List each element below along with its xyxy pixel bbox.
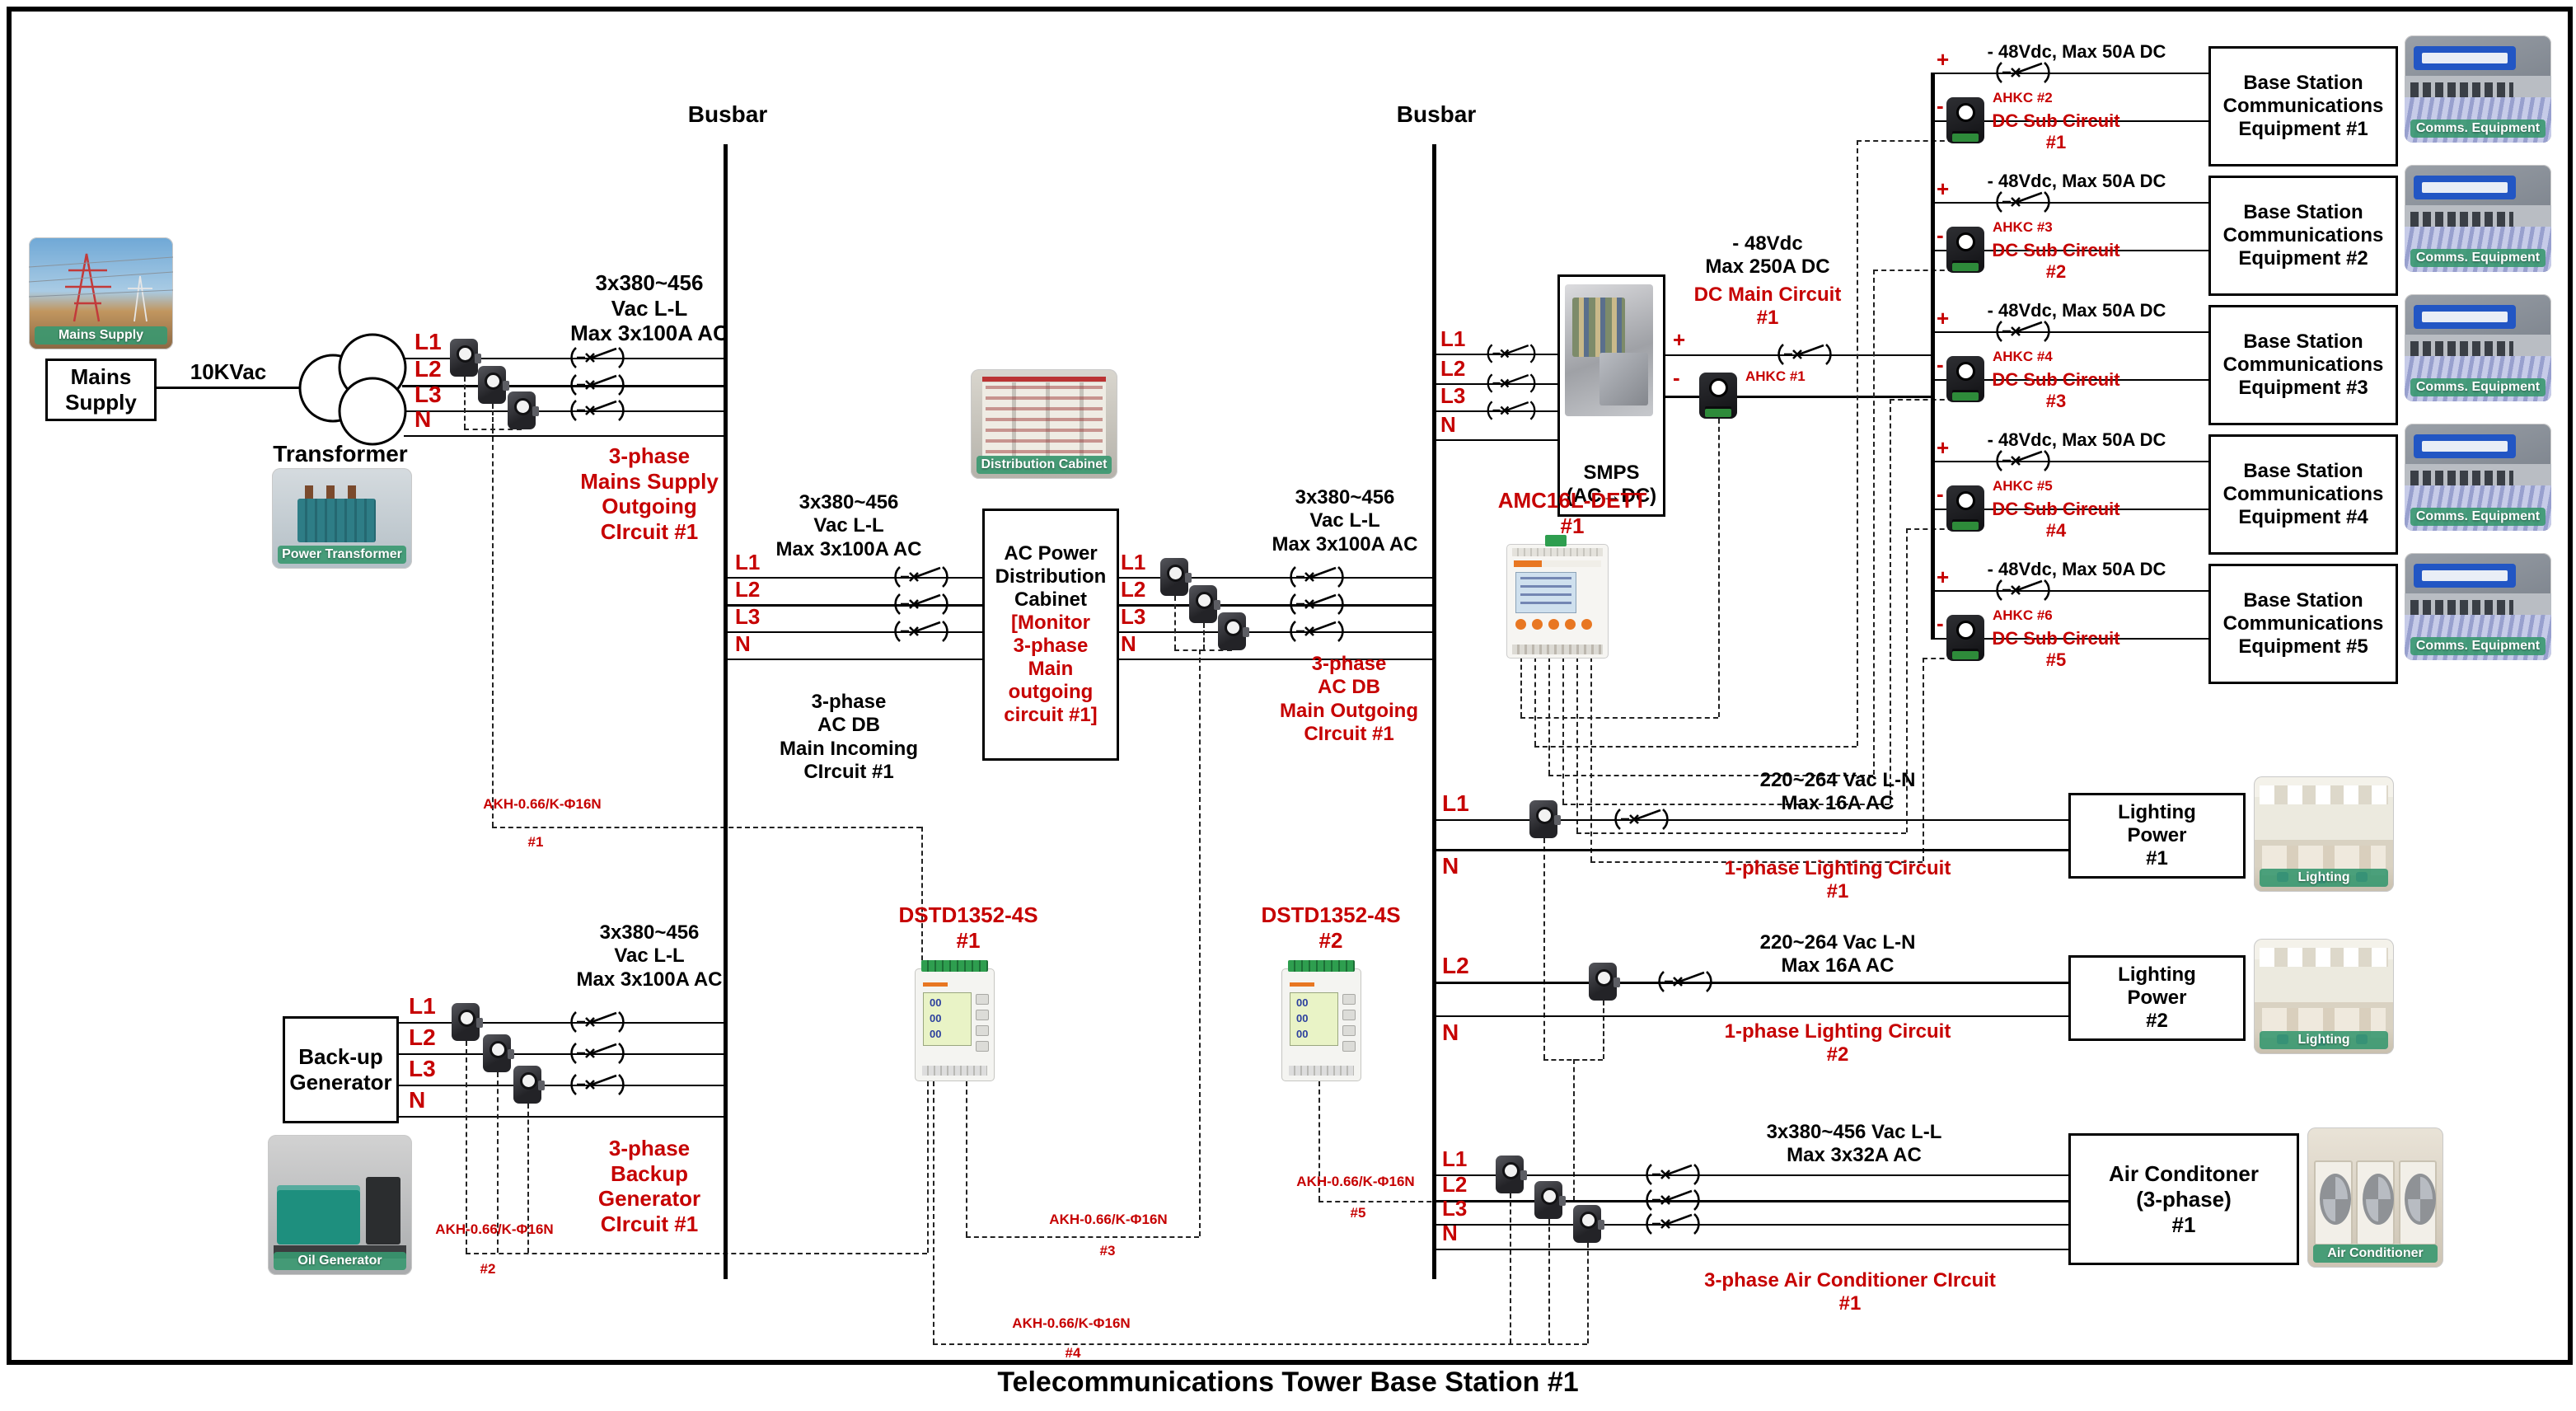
acdb-ct-number-label: #3	[1100, 1243, 1116, 1259]
light1-breaker	[1609, 808, 1674, 831]
wire5-type-label: AKH-0.66/K-Φ16N	[1296, 1174, 1414, 1190]
ac-rating: 3x380~456 Vac L-L Max 3x32A AC	[1767, 1121, 1942, 1168]
power-tower-icon	[29, 239, 173, 330]
smps-breaker-l3	[1482, 399, 1541, 422]
dcsub2-breaker	[1990, 190, 2056, 213]
gen-l2-label: L2	[409, 1025, 436, 1051]
dcsub3-plus: +	[1937, 307, 1949, 330]
acdb-out-n-label: N	[1121, 632, 1136, 656]
dcsub4-circuit-label: DC Sub Circuit #4	[1992, 499, 2119, 541]
mains-ct-wire-drop1	[464, 377, 466, 429]
dcsub4-photo-caption: Comms. Equipment	[2410, 508, 2546, 526]
dcsub4-rating: - 48Vdc, Max 50A DC	[1988, 429, 2166, 451]
amc-wire3-riser	[1873, 270, 1875, 775]
mains-ct-wire-horiz	[492, 827, 921, 828]
mains-ct-type-label: AKH-0.66/K-Φ16N	[483, 796, 601, 813]
busbar-left-label: Busbar	[688, 101, 767, 128]
dcsub5-breaker	[1990, 579, 2056, 602]
wire4-horiz	[933, 1343, 1587, 1345]
acdb-out-ct-l1	[1160, 558, 1188, 596]
amc-wire4-riser	[1890, 399, 1891, 804]
mains-breaker-l2	[564, 373, 630, 396]
ac-unit-art	[2399, 1160, 2438, 1245]
mains-photo-caption: Mains Supply	[35, 326, 167, 345]
smps-n-label: N	[1440, 413, 1456, 437]
amc-wire2-horiz	[1534, 746, 1857, 748]
dcsub2-comms-photo: Comms. Equipment	[2405, 165, 2551, 272]
ac-breaker-l1	[1640, 1163, 1706, 1186]
amc-wire5-drop	[1576, 657, 1578, 832]
dcsub5-sensor-label: AHKC #6	[1993, 608, 2053, 624]
ac-photo: Air Conditioner	[2307, 1127, 2443, 1268]
gen-ct-number-label: #2	[480, 1261, 496, 1277]
dcsub2-hall-sensor	[1946, 227, 1984, 273]
ceiling-lights-art	[2260, 948, 2388, 966]
router-art	[2414, 176, 2517, 199]
dcsub3-plus-line	[1932, 331, 2208, 333]
acdb-out-breaker-l1	[1284, 565, 1350, 588]
amc-wire2-riser	[1857, 140, 1858, 746]
dstd2-slots	[1289, 1066, 1354, 1076]
light2-rating: 220~264 Vac L-N Max 16A AC	[1760, 931, 1916, 978]
dcsub4-plus: +	[1937, 436, 1949, 460]
dstd1-buttons	[976, 994, 989, 1052]
dcsub3-photo-caption: Comms. Equipment	[2410, 378, 2546, 396]
amc-meter-label: AMC16L-DETT #1	[1498, 488, 1647, 538]
dcsub5-comms-photo: Comms. Equipment	[2405, 553, 2551, 660]
dcsub1-breaker	[1990, 61, 2056, 84]
gen-breaker-l1	[564, 1010, 630, 1034]
generator-radiator-art	[366, 1177, 400, 1245]
acdb-in-breaker-l1	[888, 565, 954, 588]
acdb-ct-wire-drop2	[1203, 623, 1205, 649]
generator-photo-caption: Oil Generator	[274, 1252, 406, 1270]
amc-wire1-horiz	[1520, 717, 1718, 719]
gen-ct-l2	[483, 1034, 511, 1072]
amc-wire6-riser	[1923, 658, 1924, 861]
dcsub5-plus: +	[1937, 565, 1949, 589]
dcsub1-circuit-label: DC Sub Circuit #1	[1992, 110, 2119, 153]
dcsub1-plus: +	[1937, 48, 1949, 72]
dcsub4-comms-photo: Comms. Equipment	[2405, 424, 2551, 531]
dcsub1-minus: -	[1937, 94, 1944, 118]
amc-wire1-riser	[1718, 419, 1720, 717]
acdb-out-line-l2	[1114, 604, 1432, 607]
mains-l2-label: L2	[415, 357, 442, 382]
amc-wire3-drop	[1548, 657, 1550, 775]
dcsub1-rating: - 48Vdc, Max 50A DC	[1988, 41, 2166, 63]
dc-main-rating-label: - 48Vdc Max 250A DC	[1705, 232, 1829, 279]
router-art	[2414, 305, 2517, 329]
dcsub1-equipment-box: Base Station Communications Equipment #1	[2208, 46, 2398, 166]
wire4-number-label: #4	[1066, 1345, 1081, 1362]
ac-breaker-l3	[1640, 1212, 1706, 1235]
mains-supply-box: Mains Supply	[45, 359, 157, 421]
light2-l-label: L2	[1442, 954, 1469, 979]
amc-wire6-drop	[1590, 657, 1592, 861]
ac-n-label: N	[1442, 1221, 1458, 1245]
amc-wire5-horiz	[1576, 832, 1906, 834]
wire5-vert	[1573, 1059, 1575, 1201]
ac-l2-label: L2	[1442, 1173, 1467, 1197]
dc-main-plus-label: +	[1673, 328, 1685, 352]
acdb-out-l3-label: L3	[1121, 605, 1145, 629]
smps-breaker-l1	[1482, 342, 1541, 365]
busbar-right-label: Busbar	[1397, 101, 1476, 128]
distribution-cabinet-photo: Distribution Cabinet	[971, 369, 1117, 479]
dcsub4-sensor-label: AHKC #5	[1993, 479, 2053, 495]
ac-line-n	[1436, 1249, 2068, 1250]
mains-breaker-l1	[564, 346, 630, 369]
ceiling-lights-art	[2260, 785, 2388, 804]
ac-l3-label: L3	[1442, 1197, 1467, 1221]
dstd1-lcd: 00 00 00	[923, 992, 972, 1046]
dcsub3-circuit-label: DC Sub Circuit #3	[1992, 369, 2119, 412]
dcsub2-plus-line	[1932, 202, 2208, 204]
mains-ct-wire-drop2	[492, 404, 494, 429]
smps-line-n	[1436, 439, 1557, 441]
dstd2-label: DSTD1352-4S #2	[1261, 902, 1400, 953]
dcsub3-hall-sensor	[1946, 356, 1984, 402]
dcsub1-sensor-label: AHKC #2	[1993, 91, 2053, 106]
amc-terminal-row-bottom	[1512, 645, 1603, 654]
gen-ct-wire-horiz	[466, 1253, 927, 1254]
acdb-ct-wire-vert	[1199, 649, 1201, 1236]
acdb-in-n-label: N	[735, 632, 751, 656]
dcsub1-comms-photo: Comms. Equipment	[2405, 35, 2551, 143]
router-art	[2414, 434, 2517, 458]
oil-generator-photo: Oil Generator	[268, 1135, 412, 1275]
gen-breaker-l3	[564, 1073, 630, 1096]
wire4-type-label: AKH-0.66/K-Φ16N	[1012, 1315, 1130, 1332]
smps-l3-label: L3	[1440, 384, 1465, 408]
ac-ct-l1	[1496, 1156, 1524, 1193]
smps-breaker-l2	[1482, 372, 1541, 395]
light2-ct	[1589, 963, 1617, 1001]
light1-photo: Lighting	[2254, 776, 2394, 892]
ac-ct-drop3	[1587, 1243, 1589, 1343]
dcsub5-rating: - 48Vdc, Max 50A DC	[1988, 559, 2166, 580]
dcsub3-rating: - 48Vdc, Max 50A DC	[1988, 300, 2166, 321]
dcsub1-photo-caption: Comms. Equipment	[2410, 120, 2546, 138]
acdb-ct-wire-horiz	[966, 1236, 1199, 1238]
dcsub2-circuit-label: DC Sub Circuit #2	[1992, 240, 2119, 283]
light1-circuit-label: 1-phase Lighting Circuit #1	[1725, 857, 1951, 904]
ac-photo-caption: Air Conditioner	[2313, 1245, 2438, 1263]
dc-main-sensor-label: AHKC #1	[1745, 369, 1806, 385]
mains-ct-number-label: #1	[528, 834, 544, 851]
acdb-in-l2-label: L2	[735, 578, 760, 602]
ac-db-box: AC Power Distribution Cabinet [Monitor 3…	[982, 509, 1119, 761]
dcsub5-circuit-label: DC Sub Circuit #5	[1992, 628, 2119, 671]
mains-n-label: N	[415, 407, 431, 433]
transformer-label: Transformer	[273, 440, 407, 467]
acdb-in-breaker-l3	[888, 620, 954, 643]
mains-ct-l2	[478, 366, 506, 404]
mains-l3-label: L3	[415, 382, 442, 408]
smps-l1-label: L1	[1440, 327, 1465, 351]
acdb-out-l2-label: L2	[1121, 578, 1145, 602]
gen-line-l3	[396, 1085, 725, 1086]
transformer-photo-caption: Power Transformer	[278, 546, 406, 564]
acdb-ct-wire-to-meter	[966, 1081, 967, 1236]
router-art	[2414, 46, 2517, 70]
wire4-riser-meter	[933, 1081, 934, 1343]
acdb-in-l1-label: L1	[735, 551, 760, 574]
light2-photo-caption: Lighting	[2260, 1031, 2388, 1049]
mains-breaker-l3	[564, 399, 630, 422]
ac-ct-drop2	[1548, 1219, 1550, 1343]
ac-l1-label: L1	[1442, 1147, 1467, 1171]
acdb-out-ct-l3	[1218, 612, 1246, 650]
light2-box: Lighting Power #2	[2068, 955, 2246, 1041]
gen-ct-wire-to-meter	[927, 1081, 929, 1253]
mains-line-n	[404, 435, 725, 437]
ac-unit-art	[2314, 1160, 2353, 1245]
gen-ct-l1	[452, 1003, 480, 1041]
diagram-title: Telecommunications Tower Base Station #1	[0, 1366, 2576, 1399]
amc-wire4-drop	[1562, 657, 1564, 804]
wire5-join	[1543, 1059, 1603, 1061]
dstd2-lcd: 00 00 00	[1290, 992, 1338, 1046]
cabinet-photo-caption: Distribution Cabinet	[977, 456, 1112, 474]
acdb-ct-wire-drop1	[1174, 596, 1176, 649]
dc-main-hall-sensor	[1699, 373, 1737, 419]
ac-circuit-label: 3-phase Air Conditioner CIrcuit #1	[1704, 1269, 1996, 1316]
light2-n-label: N	[1442, 1020, 1459, 1046]
ac-ct-l3	[1573, 1205, 1601, 1243]
dcsub5-minus: -	[1937, 612, 1944, 635]
dc-bus	[1931, 73, 1935, 640]
cabinet-top-art	[982, 377, 1106, 382]
dstd2-terminals	[1288, 960, 1355, 972]
light2-line-n	[1436, 1015, 2068, 1017]
acdb-out-breaker-l3	[1284, 620, 1350, 643]
transformer-body-art	[297, 499, 376, 543]
mains-outgoing-label: 3-phase Mains Supply Outgoing CIrcuit #1	[580, 443, 719, 545]
dc-main-minus-label: -	[1673, 366, 1680, 390]
acdb-out-breaker-l2	[1284, 593, 1350, 616]
light1-photo-caption: Lighting	[2260, 869, 2388, 887]
cabinet-grid-art	[982, 382, 1106, 457]
gen-line-n	[396, 1116, 725, 1118]
acdb-out-ct-l2	[1189, 585, 1217, 623]
amc-wire2-link	[1857, 140, 1961, 142]
dstd2-brand	[1290, 982, 1314, 987]
dcsub1-hall-sensor	[1946, 97, 1984, 143]
wire5-drop-ct1	[1543, 838, 1545, 1059]
mains-rating-label: 3x380~456 Vac L-L Max 3x100A AC	[570, 270, 728, 346]
smps-photo	[1565, 284, 1653, 416]
dstd1-slots	[922, 1066, 987, 1076]
acdb-out-circuit-label: 3-phase AC DB Main Outgoing CIrcuit #1	[1280, 653, 1418, 746]
gen-line-l2	[396, 1053, 725, 1055]
mains-ct-l3	[508, 391, 536, 429]
mains-feed-line	[154, 387, 301, 389]
backup-generator-box: Back-up Generator	[283, 1016, 399, 1123]
gen-breaker-l2	[564, 1042, 630, 1065]
gen-line-l1	[396, 1022, 725, 1024]
light1-n-label: N	[1442, 854, 1459, 879]
light1-line-n	[1436, 849, 2068, 851]
acdb-ct-type-label: AKH-0.66/K-Φ16N	[1049, 1212, 1167, 1228]
dcsub5-equipment-box: Base Station Communications Equipment #5	[2208, 564, 2398, 684]
acdb-in-line-n	[728, 659, 982, 660]
transformer-bushings-art	[305, 485, 313, 499]
acdb-in-rating-label: 3x380~456 Vac L-L Max 3x100A AC	[776, 491, 922, 561]
amc-brand-stripe	[1514, 560, 1601, 567]
amc-buttons	[1515, 619, 1592, 630]
amc-lcd-screen	[1515, 572, 1576, 613]
ac-unit-art	[2356, 1160, 2395, 1245]
acdb-out-line-l3	[1114, 631, 1432, 633]
dc-main-breaker	[1772, 343, 1838, 366]
light2-line-l	[1436, 982, 2068, 984]
amc-wire2-drop	[1534, 657, 1536, 746]
mains-l1-label: L1	[415, 330, 442, 355]
dstd1-meter: 00 00 00	[915, 968, 995, 1081]
gen-rating-label: 3x380~456 Vac L-L Max 3x100A AC	[577, 921, 723, 991]
dcsub3-comms-photo: Comms. Equipment	[2405, 294, 2551, 401]
acdb-in-l3-label: L3	[735, 605, 760, 629]
dcsub2-rating: - 48Vdc, Max 50A DC	[1988, 171, 2166, 192]
dstd1-label: DSTD1352-4S #1	[898, 902, 1037, 953]
dcsub3-equipment-box: Base Station Communications Equipment #3	[2208, 305, 2398, 425]
dstd2-meter: 00 00 00	[1281, 968, 1361, 1081]
mains-line-l3	[402, 410, 725, 412]
light1-rating: 220~264 Vac L-N Max 16A AC	[1760, 769, 1916, 816]
dcsub3-breaker	[1990, 320, 2056, 343]
dstd2-buttons	[1342, 994, 1356, 1052]
acdb-out-rating-label: 3x380~456 Vac L-L Max 3x100A AC	[1272, 486, 1418, 556]
transformer-symbol	[290, 325, 418, 452]
light2-breaker	[1652, 970, 1718, 993]
mains-supply-photo: Mains Supply	[29, 237, 173, 349]
dcsub4-equipment-box: Base Station Communications Equipment #4	[2208, 434, 2398, 555]
dcsub4-plus-line	[1932, 461, 2208, 462]
acdb-in-circuit-label: 3-phase AC DB Main Incoming CIrcuit #1	[780, 691, 918, 784]
mains-ct-l1	[450, 339, 478, 377]
smps-l2-label: L2	[1440, 357, 1465, 381]
gen-ct-l3	[513, 1066, 541, 1104]
gen-n-label: N	[409, 1088, 425, 1113]
generator-body-art	[277, 1185, 361, 1244]
dstd1-terminals	[921, 960, 988, 972]
dcsub2-plus: +	[1937, 177, 1949, 201]
light2-photo: Lighting	[2254, 939, 2394, 1054]
dcsub2-photo-caption: Comms. Equipment	[2410, 249, 2546, 267]
light2-circuit-label: 1-phase Lighting Circuit #2	[1725, 1020, 1951, 1067]
dcsub2-equipment-box: Base Station Communications Equipment #2	[2208, 176, 2398, 296]
dcsub2-sensor-label: AHKC #3	[1993, 220, 2053, 236]
dcsub5-plus-line	[1932, 590, 2208, 592]
mains-line-l2	[402, 385, 725, 387]
dcsub2-minus: -	[1937, 223, 1944, 247]
acdb-in-breaker-l2	[888, 593, 954, 616]
power-transformer-photo: Power Transformer	[272, 468, 412, 569]
dcsub5-photo-caption: Comms. Equipment	[2410, 637, 2546, 655]
light1-box: Lighting Power #1	[2068, 793, 2246, 879]
mains-voltage-label: 10KVac	[190, 359, 267, 385]
wire5-drop-ct2	[1603, 1001, 1604, 1059]
gen-l1-label: L1	[409, 994, 436, 1020]
ac-breaker-l2	[1640, 1188, 1706, 1212]
amc-meter	[1506, 544, 1609, 659]
ac-line-l1	[1436, 1174, 2068, 1176]
dcsub4-breaker	[1990, 449, 2056, 472]
gen-l3-label: L3	[409, 1057, 436, 1082]
dc-main-circuit-label: DC Main Circuit #1	[1694, 284, 1842, 330]
dcsub1-plus-line	[1932, 73, 2208, 74]
ac-ct-drop1	[1510, 1193, 1511, 1343]
ac-box: Air Conditoner (3-phase) #1	[2068, 1133, 2299, 1265]
ac-db-box-title: AC Power Distribution Cabinet	[995, 542, 1107, 612]
dcsub3-sensor-label: AHKC #4	[1993, 349, 2053, 365]
gen-circuit-label: 3-phase Backup Generator CIrcuit #1	[598, 1136, 700, 1237]
acdb-out-l1-label: L1	[1121, 551, 1145, 574]
wire5-number-label: #5	[1351, 1205, 1366, 1221]
dcsub3-minus: -	[1937, 353, 1944, 377]
schematic-canvas: Telecommunications Tower Base Station #1…	[0, 0, 2576, 1411]
ac-line-l3	[1436, 1224, 2068, 1226]
mains-ct-wire-vert	[492, 429, 494, 827]
ac-ct-l2	[1534, 1181, 1562, 1219]
dcsub5-hall-sensor	[1946, 615, 1984, 661]
router-art	[2414, 564, 2517, 588]
gen-ct-type-label: AKH-0.66/K-Φ16N	[435, 1221, 553, 1238]
ac-line-l2	[1436, 1200, 2068, 1202]
amc-terminal-row-top	[1512, 548, 1603, 556]
dstd1-brand	[923, 982, 948, 987]
dcsub4-hall-sensor	[1946, 485, 1984, 532]
amc-wire1-drop	[1520, 657, 1522, 717]
ac-db-box-note: [Monitor 3-phase Main outgoing circuit #…	[1004, 612, 1097, 727]
light1-ct	[1529, 800, 1557, 838]
dcsub4-minus: -	[1937, 482, 1944, 506]
light1-l-label: L1	[1442, 791, 1469, 817]
busbar-right	[1432, 144, 1436, 1279]
